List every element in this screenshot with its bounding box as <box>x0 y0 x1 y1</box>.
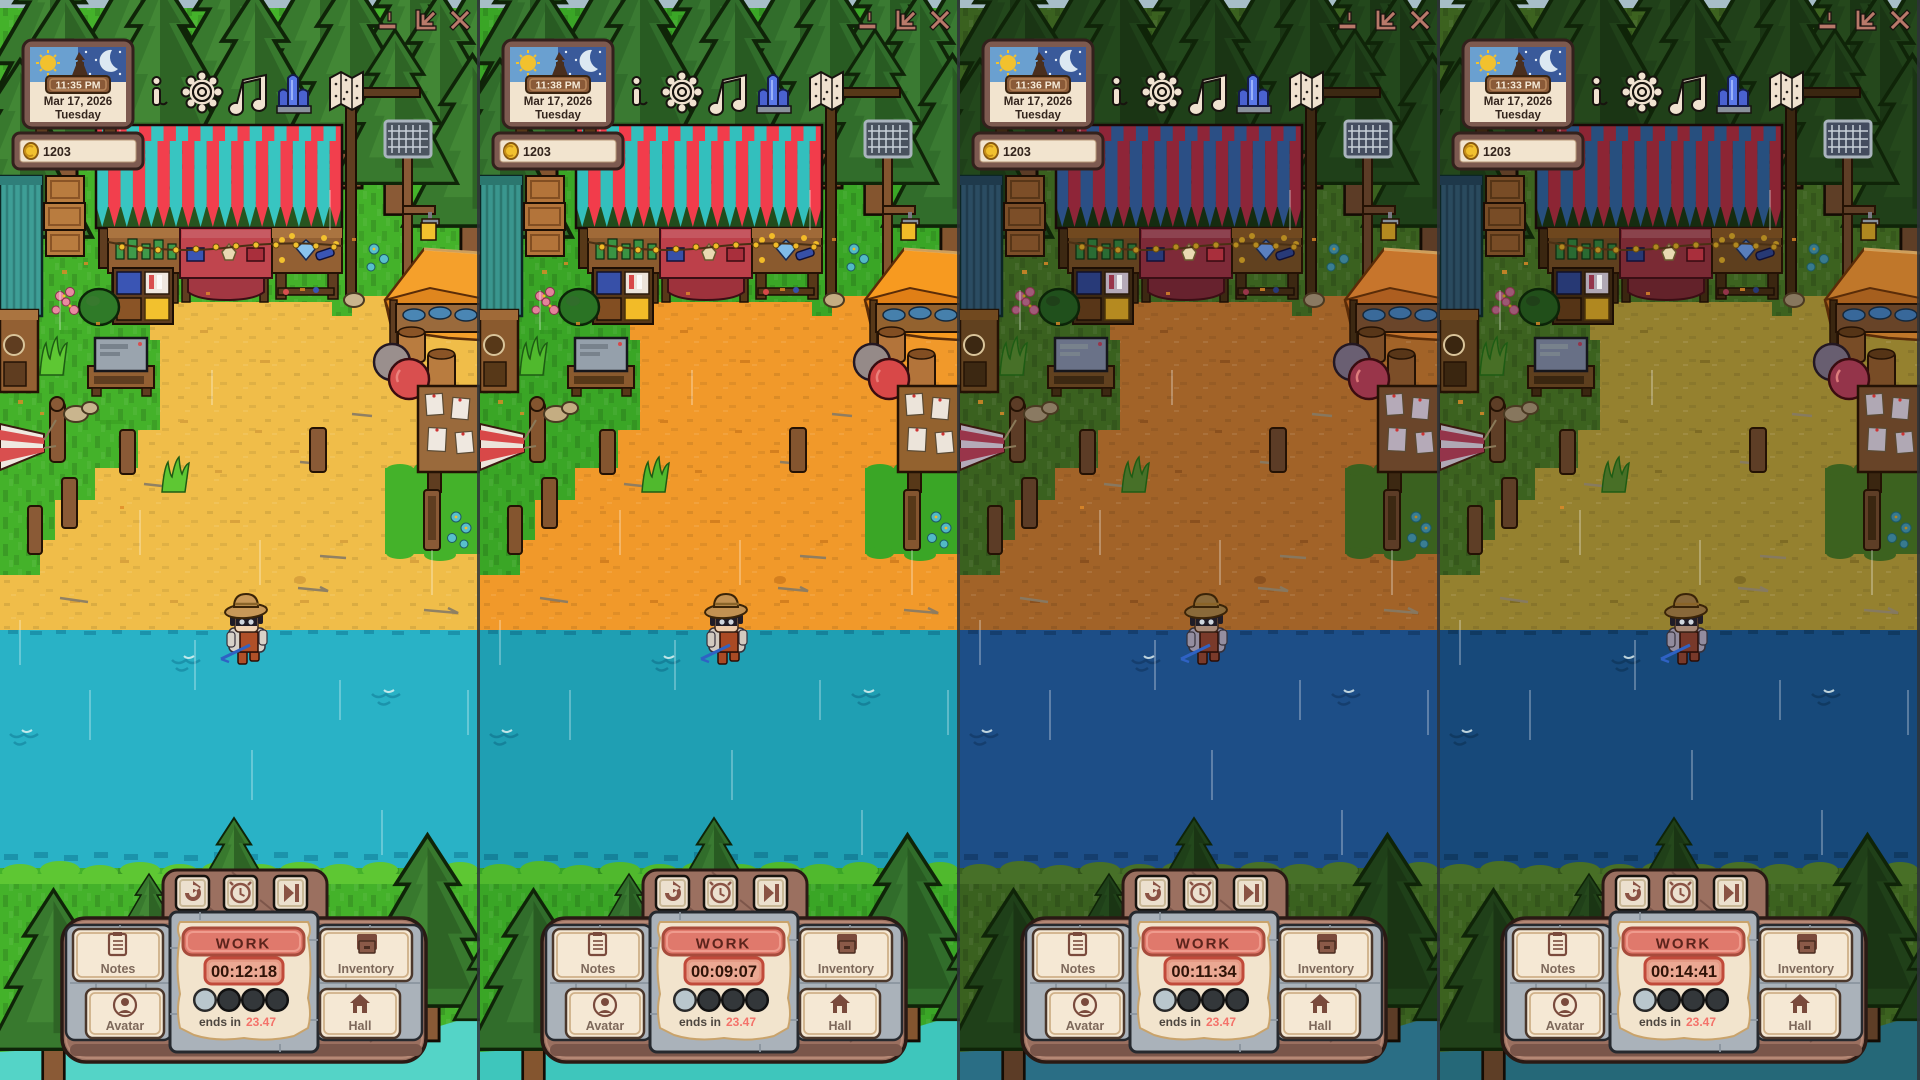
svg-text:00:12:18: 00:12:18 <box>211 963 277 981</box>
svg-text:00:09:07: 00:09:07 <box>691 963 757 981</box>
svg-text:11:36 PM: 11:36 PM <box>1016 80 1061 92</box>
svg-text:11:35 PM: 11:35 PM <box>56 80 101 92</box>
svg-text:00:14:41: 00:14:41 <box>1651 963 1717 981</box>
svg-text:00:11:34: 00:11:34 <box>1171 963 1237 981</box>
svg-text:11:33 PM: 11:33 PM <box>1496 80 1541 92</box>
svg-text:11:38 PM: 11:38 PM <box>536 80 581 92</box>
